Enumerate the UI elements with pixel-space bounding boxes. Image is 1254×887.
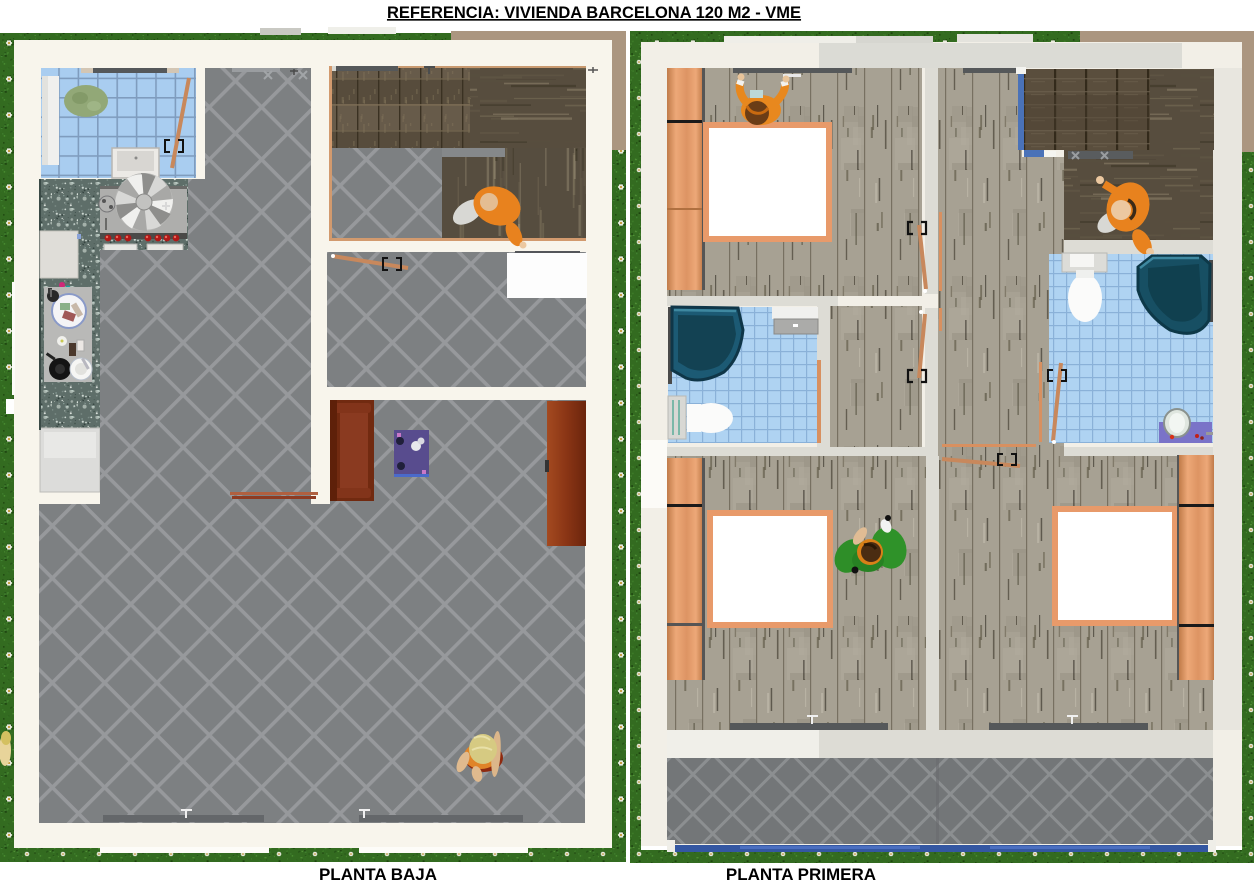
svg-text:REFERENCIA: VIVIENDA BARCELONA: REFERENCIA: VIVIENDA BARCELONA 120 M2 - … xyxy=(387,4,801,22)
svg-text:PLANTA BAJA: PLANTA BAJA xyxy=(319,865,437,884)
svg-text:PLANTA PRIMERA: PLANTA PRIMERA xyxy=(726,865,876,884)
